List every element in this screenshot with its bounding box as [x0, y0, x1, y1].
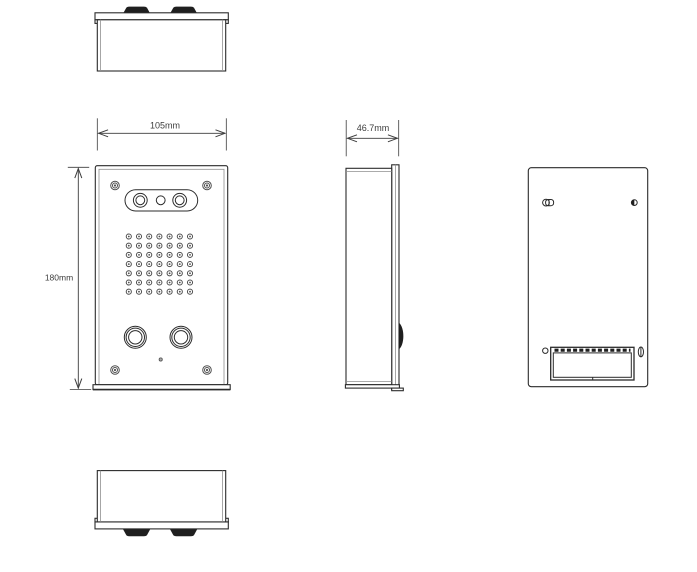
speaker-hole-center — [169, 254, 171, 256]
depth-dimension: 46.7mm — [346, 120, 399, 156]
orthographic-views: 105mm 180mm — [0, 0, 697, 572]
screw-center — [206, 369, 208, 371]
speaker-hole-center — [128, 245, 130, 247]
speaker-hole-center — [159, 263, 161, 265]
side-view — [345, 165, 403, 391]
speaker-hole-center — [138, 236, 140, 238]
speaker-hole-center — [169, 291, 171, 293]
bottom-body — [97, 471, 225, 522]
speaker-hole-center — [189, 272, 191, 274]
speaker-hole-center — [159, 236, 161, 238]
top-flange — [95, 13, 228, 20]
speaker-hole-center — [148, 291, 150, 293]
bottom-view — [95, 471, 228, 537]
speaker-hole-center — [159, 282, 161, 284]
speaker-hole-center — [179, 272, 181, 274]
speaker-hole-center — [179, 254, 181, 256]
screw-center — [114, 184, 116, 186]
side-body — [346, 168, 392, 384]
speaker-hole-center — [189, 282, 191, 284]
depth-dimension-label: 46.7mm — [357, 123, 390, 133]
speaker-hole-center — [148, 236, 150, 238]
speaker-hole-center — [189, 236, 191, 238]
speaker-hole-center — [179, 236, 181, 238]
speaker-hole-center — [148, 272, 150, 274]
cable-gland-right — [170, 529, 198, 536]
speaker-hole-center — [169, 245, 171, 247]
top-view — [95, 7, 228, 71]
speaker-hole-center — [138, 272, 140, 274]
button-profile-bump — [399, 323, 403, 350]
speaker-hole-center — [138, 245, 140, 247]
speaker-hole-center — [148, 245, 150, 247]
speaker-hole-center — [128, 263, 130, 265]
speaker-hole-center — [159, 254, 161, 256]
speaker-hole-center — [169, 263, 171, 265]
speaker-hole-center — [179, 282, 181, 284]
height-dimension: 180mm — [45, 167, 91, 389]
speaker-hole-center — [179, 263, 181, 265]
speaker-hole-center — [159, 291, 161, 293]
top-body — [97, 20, 225, 71]
speaker-hole-center — [128, 272, 130, 274]
speaker-hole-center — [138, 291, 140, 293]
speaker-hole-center — [148, 282, 150, 284]
screw-center — [114, 369, 116, 371]
width-dimension-label: 105mm — [150, 121, 180, 131]
speaker-hole-center — [159, 245, 161, 247]
speaker-hole-center — [128, 282, 130, 284]
speaker-hole-center — [159, 272, 161, 274]
speaker-hole-center — [189, 254, 191, 256]
speaker-hole-center — [179, 245, 181, 247]
speaker-hole-center — [128, 236, 130, 238]
speaker-hole-center — [138, 282, 140, 284]
speaker-hole-center — [189, 291, 191, 293]
speaker-hole-center — [138, 254, 140, 256]
speaker-hole-center — [179, 291, 181, 293]
cable-gland-left — [123, 529, 151, 536]
speaker-hole-center — [148, 263, 150, 265]
speaker-hole-center — [169, 236, 171, 238]
screw-center — [206, 184, 208, 186]
technical-drawing-sheet: 105mm 180mm — [0, 0, 697, 572]
front-view — [93, 166, 230, 390]
speaker-hole-center — [138, 263, 140, 265]
speaker-hole-center — [128, 291, 130, 293]
speaker-hole-center — [189, 263, 191, 265]
microphone-hole — [159, 358, 162, 361]
speaker-hole-center — [169, 272, 171, 274]
bottom-flange — [95, 522, 228, 529]
back-view — [528, 168, 647, 387]
width-dimension: 105mm — [97, 118, 226, 150]
speaker-hole-center — [169, 282, 171, 284]
height-dimension-label: 180mm — [45, 273, 73, 283]
speaker-hole-center — [128, 254, 130, 256]
speaker-hole-center — [148, 254, 150, 256]
side-base-foot — [392, 388, 404, 391]
speaker-hole-center — [189, 245, 191, 247]
